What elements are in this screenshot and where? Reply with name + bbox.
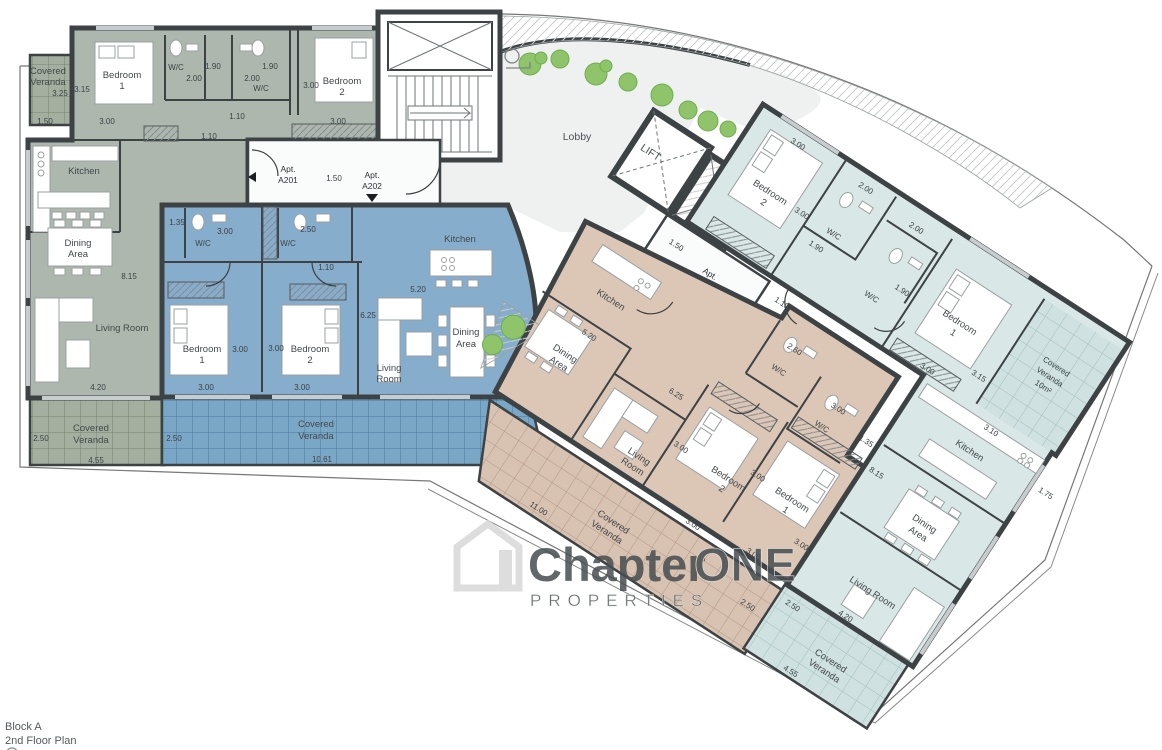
room-label: W/C <box>280 239 296 248</box>
room-label: Dining <box>453 327 480 338</box>
room-label: W/C <box>168 63 184 72</box>
room-label: Kitchen <box>444 234 476 245</box>
a201-wardrobe-2 <box>292 124 376 141</box>
plan-title-floor: 2nd Floor Plan <box>5 735 77 747</box>
dim-label: 4.20 <box>90 383 106 392</box>
room-label: Covered <box>30 66 66 77</box>
room-label: Bedroom <box>103 70 142 81</box>
dim-label: 3.00 <box>330 117 346 126</box>
dim-label: 1.90 <box>262 62 278 71</box>
watermark-text: ONE <box>694 538 796 591</box>
room-label: Veranda <box>73 435 109 446</box>
room-label: 1 <box>199 355 204 366</box>
room-label: 2 <box>307 355 312 366</box>
dim-label: 1.35 <box>857 433 875 449</box>
dim-label: 4.55 <box>88 456 104 465</box>
room-label: Kitchen <box>68 166 100 177</box>
dim-label: 3.00 <box>99 117 115 126</box>
room-label: Bedroom <box>323 76 362 87</box>
dim-label: 1.90 <box>205 62 221 71</box>
room-label: 2 <box>339 87 344 98</box>
dim-label: 3.00 <box>217 227 233 236</box>
dim-label: 6.25 <box>360 311 376 320</box>
dim-label: 10.61 <box>312 455 333 464</box>
dim-label: 3.00 <box>232 345 248 354</box>
watermark-text: Chapter <box>528 538 706 591</box>
room-label: Veranda <box>298 431 334 442</box>
dim-label: 3.15 <box>74 85 90 94</box>
room-label: Veranda <box>30 77 66 88</box>
room-label: Living <box>377 363 402 374</box>
dim-label: 2.50 <box>300 225 316 234</box>
dim-label: 1.50 <box>37 117 53 126</box>
dim-label: 5.20 <box>410 285 426 294</box>
room-label: W/C <box>253 84 269 93</box>
a201-wardrobe <box>144 126 178 141</box>
dim-label: 1.35 <box>169 218 185 227</box>
room-label: Dining <box>65 238 92 249</box>
dim-label: 3.25 <box>52 89 68 98</box>
dim-label: 8.15 <box>121 272 137 281</box>
dim-label: 2.00 <box>186 74 202 83</box>
dim-label: 3.00 <box>198 383 214 392</box>
floor-plan-page: Covered Veranda 3.25 1.50 Bedroom 1 3.15… <box>0 0 1162 750</box>
room-label: Living Room <box>96 323 149 334</box>
room-label: Covered <box>73 423 109 434</box>
dim-label: 2.50 <box>166 434 182 443</box>
room-label: Room <box>376 374 401 385</box>
corridor-a: Apt. A201 1.50 Apt. A202 <box>248 140 440 205</box>
room-label: Area <box>68 249 89 260</box>
dim-label: 1.75 <box>1037 485 1055 501</box>
dim-label: 1.10 <box>201 132 217 141</box>
watermark-subtitle: PROPERTIES <box>530 591 709 610</box>
apt-marker: A201 <box>278 175 298 185</box>
a202-closet <box>263 207 277 259</box>
plan-title-block: Block A <box>5 721 42 733</box>
room-label: W/C <box>195 239 211 248</box>
room-label: 1 <box>119 81 124 92</box>
dim-label: 2.50 <box>33 434 49 443</box>
dim-label: 1.10 <box>229 112 245 121</box>
title-block: Block A 2nd Floor Plan <box>5 721 77 750</box>
floor-plan-drawing: Covered Veranda 3.25 1.50 Bedroom 1 3.15… <box>0 0 1162 750</box>
dim-label: 3.00 <box>303 81 319 90</box>
apt-marker: Apt. <box>280 164 295 174</box>
lobby-label: Lobby <box>563 131 592 143</box>
corridor-a-floor <box>248 140 440 205</box>
room-label: Covered <box>298 419 334 430</box>
apt-marker: Apt. <box>364 170 379 180</box>
apt-marker: A202 <box>362 181 382 191</box>
room-label: Bedroom <box>183 344 222 355</box>
dim-label: 1.50 <box>326 174 342 183</box>
dim-label: 3.00 <box>294 383 310 392</box>
room-label: Bedroom <box>291 344 330 355</box>
dim-label: 2.00 <box>244 74 260 83</box>
dim-label: 3.00 <box>268 344 284 353</box>
dim-label: 1.10 <box>318 263 334 272</box>
watermark-one-bar <box>499 550 512 588</box>
a202-wardrobe-2 <box>290 284 346 300</box>
room-label: Area <box>456 339 477 350</box>
